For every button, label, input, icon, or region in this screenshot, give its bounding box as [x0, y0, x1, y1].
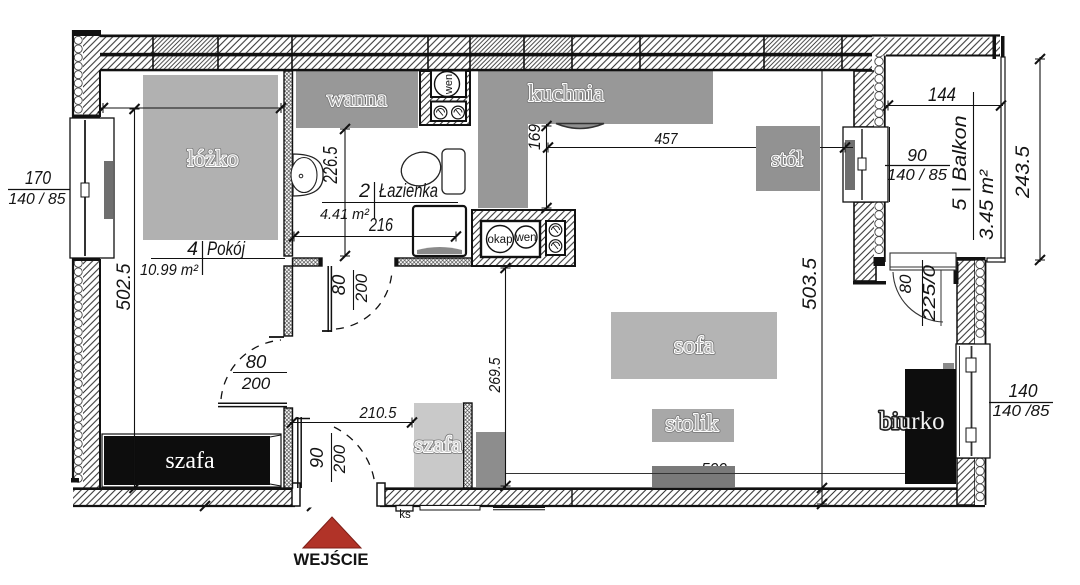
svg-text:Łazienka: Łazienka [379, 180, 438, 202]
svg-text:170: 170 [25, 168, 51, 188]
svg-text:226.5: 226.5 [320, 146, 342, 184]
svg-text:200: 200 [352, 273, 371, 303]
svg-text:biurko: biurko [879, 408, 944, 435]
svg-text:502.5: 502.5 [114, 263, 135, 310]
svg-text:Pokój: Pokój [207, 238, 246, 260]
svg-text:225/0: 225/0 [919, 265, 939, 323]
svg-text:4: 4 [187, 238, 198, 260]
svg-text:sofa: sofa [674, 333, 714, 359]
svg-text:200: 200 [241, 374, 271, 393]
svg-text:140 / 85: 140 / 85 [9, 191, 66, 208]
svg-text:kuchnia: kuchnia [528, 81, 604, 107]
svg-text:okap: okap [488, 234, 513, 246]
svg-text:5 | Balkon: 5 | Balkon [950, 116, 971, 211]
svg-text:216: 216 [368, 215, 394, 235]
svg-text:10.99 m²: 10.99 m² [140, 262, 199, 279]
svg-text:stół: stół [771, 146, 803, 171]
svg-text:WEJŚCIE: WEJŚCIE [294, 550, 369, 569]
svg-text:łóżko: łóżko [187, 146, 238, 171]
svg-text:140: 140 [1009, 381, 1038, 401]
svg-text:80: 80 [246, 351, 267, 372]
svg-text:2: 2 [358, 180, 370, 202]
svg-text:144: 144 [928, 85, 956, 106]
svg-text:3.45 m²: 3.45 m² [977, 169, 998, 240]
svg-text:stolik: stolik [665, 411, 718, 437]
svg-text:457: 457 [655, 131, 679, 148]
svg-text:210.5: 210.5 [359, 405, 397, 422]
svg-text:szafa: szafa [414, 432, 461, 457]
svg-text:wanna: wanna [327, 86, 387, 111]
svg-text:wen: wen [443, 74, 455, 95]
svg-text:szafa: szafa [165, 448, 215, 474]
svg-text:140 / 85: 140 / 85 [887, 167, 947, 184]
svg-text:269.5: 269.5 [487, 357, 504, 393]
svg-text:90: 90 [907, 145, 927, 165]
svg-text:90: 90 [306, 447, 327, 468]
svg-text:4.41 m²: 4.41 m² [320, 206, 370, 223]
svg-text:140 /85: 140 /85 [993, 403, 1050, 420]
svg-text:200: 200 [330, 444, 349, 474]
svg-text:80: 80 [896, 274, 915, 293]
svg-text:169: 169 [525, 124, 544, 150]
svg-text:wen: wen [514, 232, 536, 244]
svg-text:ks: ks [399, 509, 411, 521]
svg-text:503.5: 503.5 [800, 258, 821, 310]
svg-text:243.5: 243.5 [1013, 146, 1034, 200]
svg-text:80: 80 [328, 274, 349, 295]
